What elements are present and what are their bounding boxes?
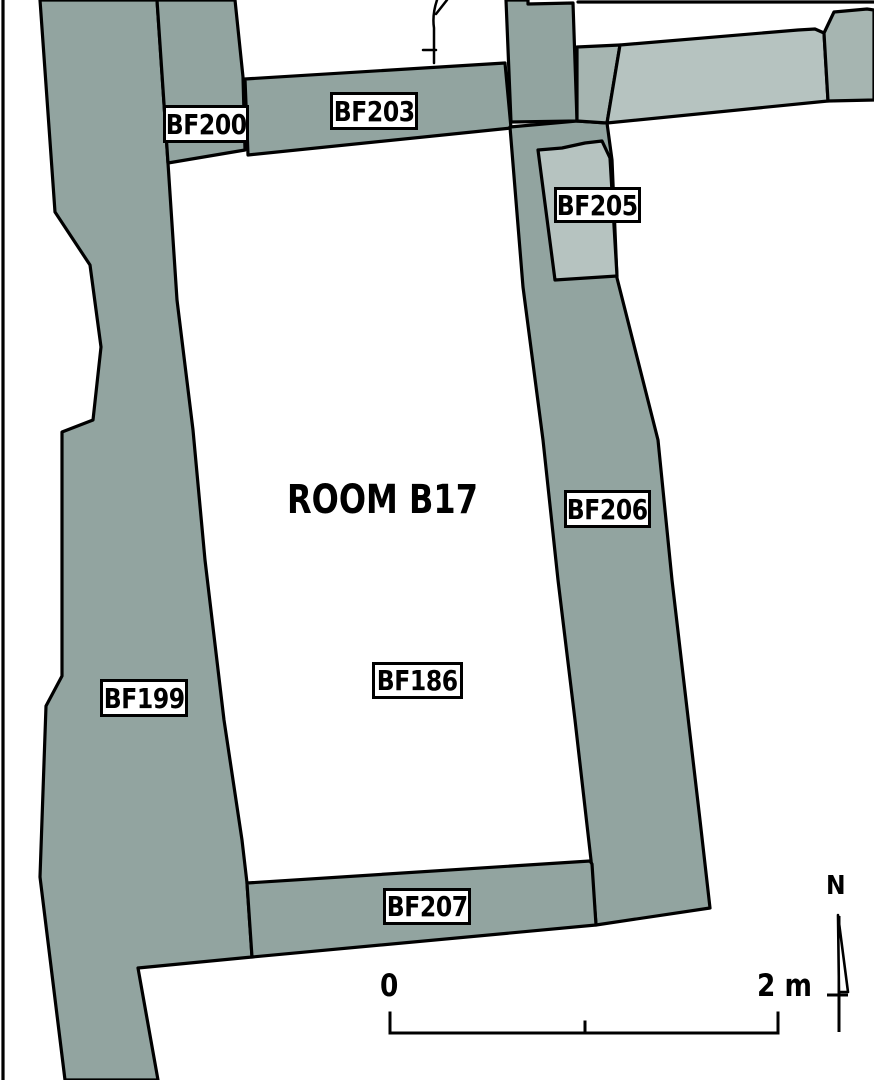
feature-line-branch [436,0,447,14]
feature-outline-lines [423,0,447,63]
label-bf200: BF200 [163,105,249,143]
room-title-text: ROOM B17 [287,477,478,523]
label-bf186: BF186 [372,662,463,699]
north-arrow [827,915,848,1032]
label-bf203: BF203 [330,92,418,130]
scale-start-text: 0 [380,968,398,1004]
label-bf199: BF199 [100,679,188,717]
wall-band-northeast [607,29,828,123]
label-bf205-text: BF205 [557,189,638,222]
north-label: N [826,871,848,901]
label-bf206-text: BF206 [567,493,648,526]
north-arrow-head [838,915,848,992]
room-title: ROOM B17 [287,477,526,523]
scale-end-label: 2 m [757,968,822,1004]
feature-line-curve [433,0,437,63]
label-bf206: BF206 [564,490,651,528]
wall-column-north [506,0,577,122]
label-bf207-text: BF207 [387,890,468,923]
scale-bar [390,1013,778,1033]
label-bf186-text: BF186 [377,664,458,697]
scale-start-label: 0 [380,968,402,1004]
label-bf199-text: BF199 [104,682,185,715]
label-bf207: BF207 [383,888,471,925]
label-bf203-text: BF203 [334,95,415,128]
label-bf205: BF205 [554,187,641,223]
north-label-text: N [826,871,846,901]
wall-west-bf199 [40,0,252,1080]
wall-segment-northeast-end [824,9,874,101]
scale-end-text: 2 m [757,968,812,1004]
label-bf200-text: BF200 [166,108,247,141]
archaeological-plan: BF200 BF203 BF205 BF206 BF186 BF199 BF20… [0,0,874,1080]
